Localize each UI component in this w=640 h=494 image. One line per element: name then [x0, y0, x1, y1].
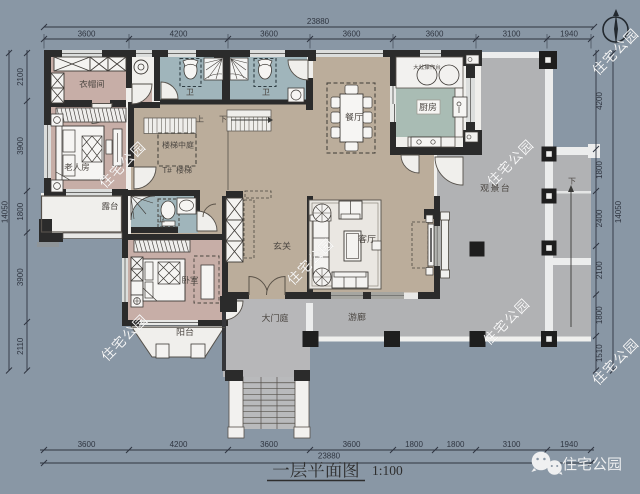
svg-text:3600: 3600 [343, 30, 361, 39]
svg-text:T#: T# [162, 166, 172, 175]
svg-text:14050: 14050 [614, 200, 623, 223]
svg-text:3600: 3600 [78, 440, 96, 449]
svg-text:23880: 23880 [318, 452, 341, 461]
svg-text:1940: 1940 [560, 30, 578, 39]
svg-text:4200: 4200 [170, 30, 188, 39]
svg-text:4200: 4200 [170, 440, 188, 449]
svg-text:1800: 1800 [447, 440, 465, 449]
svg-text:3600: 3600 [260, 30, 278, 39]
svg-text:3900: 3900 [16, 268, 25, 286]
svg-text:1510: 1510 [595, 344, 604, 362]
svg-text:3900: 3900 [16, 137, 25, 155]
svg-text:1800: 1800 [405, 440, 423, 449]
svg-text:3600: 3600 [343, 440, 361, 449]
svg-text:2100: 2100 [16, 68, 25, 86]
svg-text:1940: 1940 [560, 440, 578, 449]
svg-text:3600: 3600 [78, 30, 96, 39]
svg-text:1800: 1800 [16, 202, 25, 220]
svg-text:3600: 3600 [260, 440, 278, 449]
svg-text:2110: 2110 [16, 337, 25, 355]
svg-text:2100: 2100 [595, 261, 604, 279]
svg-text:3100: 3100 [503, 440, 521, 449]
svg-text:3600: 3600 [426, 30, 444, 39]
svg-text:14050: 14050 [1, 200, 10, 223]
svg-text:23880: 23880 [307, 17, 330, 26]
svg-text:4200: 4200 [595, 92, 604, 110]
svg-text:3100: 3100 [503, 30, 521, 39]
svg-text:2400: 2400 [595, 209, 604, 227]
svg-text:1:100: 1:100 [372, 463, 403, 478]
svg-text:1800: 1800 [595, 306, 604, 324]
svg-text:1800: 1800 [595, 161, 604, 179]
